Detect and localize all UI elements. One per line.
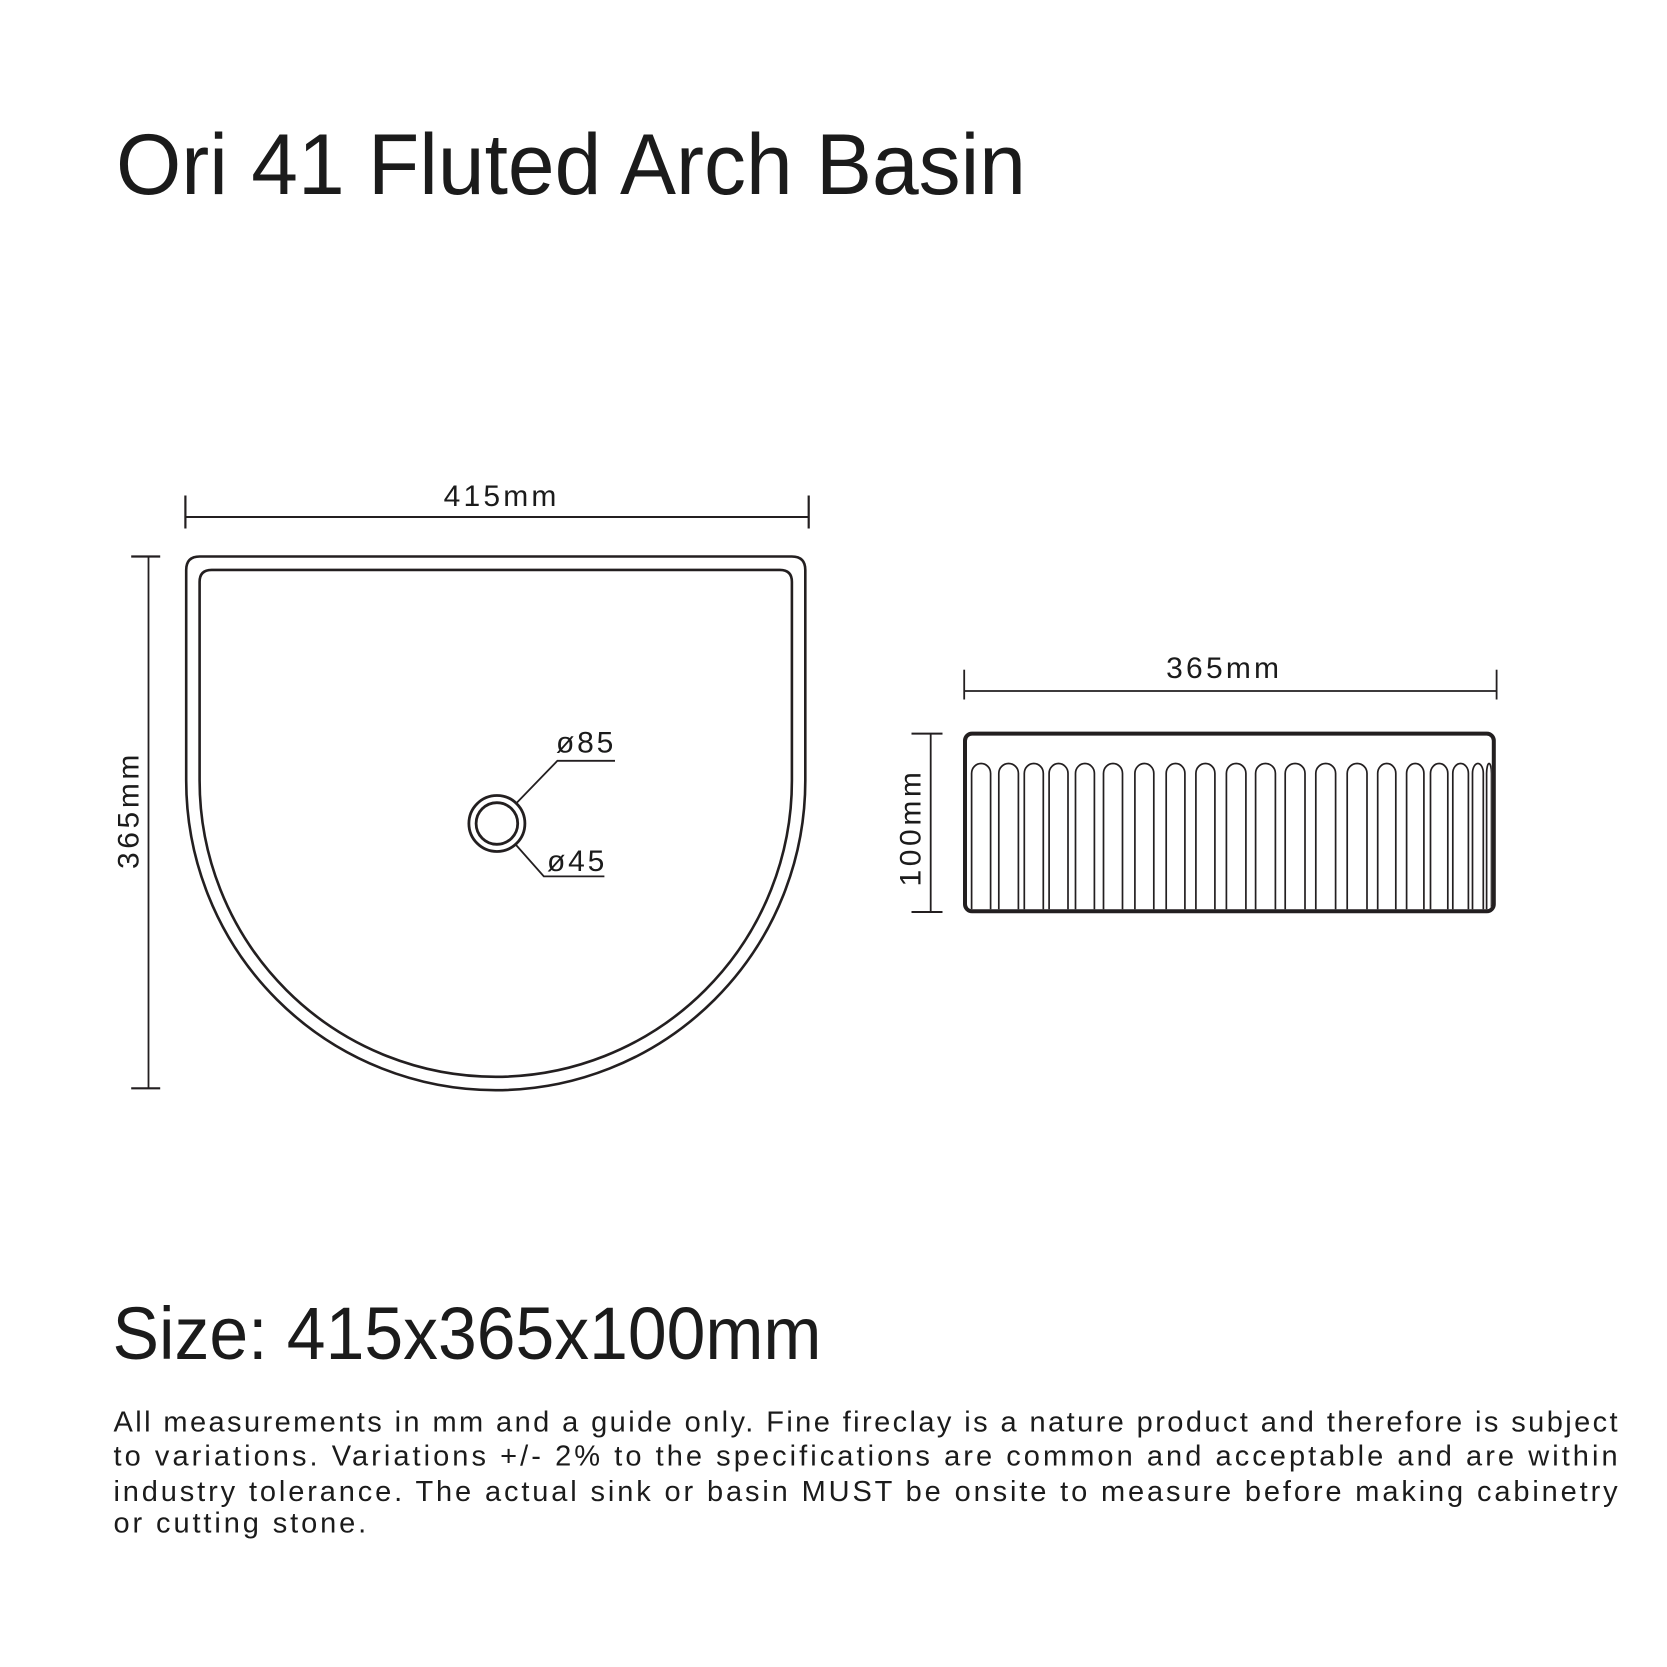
- svg-text:ø85: ø85: [556, 727, 616, 760]
- svg-text:415mm: 415mm: [444, 480, 560, 513]
- svg-text:Ori 41 Fluted Arch Basin: Ori 41 Fluted Arch Basin: [116, 117, 1026, 213]
- svg-text:Size: 415x365x100mm: Size: 415x365x100mm: [113, 1292, 822, 1375]
- svg-text:ø45: ø45: [547, 845, 607, 878]
- svg-text:or cutting stone.: or cutting stone.: [114, 1508, 370, 1540]
- svg-text:365mm: 365mm: [1166, 652, 1282, 685]
- svg-text:365mm: 365mm: [112, 751, 145, 869]
- svg-text:to variations. Variations +/-: to variations. Variations +/- 2% to the …: [114, 1440, 1621, 1472]
- svg-text:100mm: 100mm: [895, 768, 928, 886]
- svg-text:All measurements in mm and a g: All measurements in mm and a guide only.…: [114, 1407, 1621, 1439]
- svg-text:industry tolerance. The actual: industry tolerance. The actual sink or b…: [114, 1476, 1621, 1508]
